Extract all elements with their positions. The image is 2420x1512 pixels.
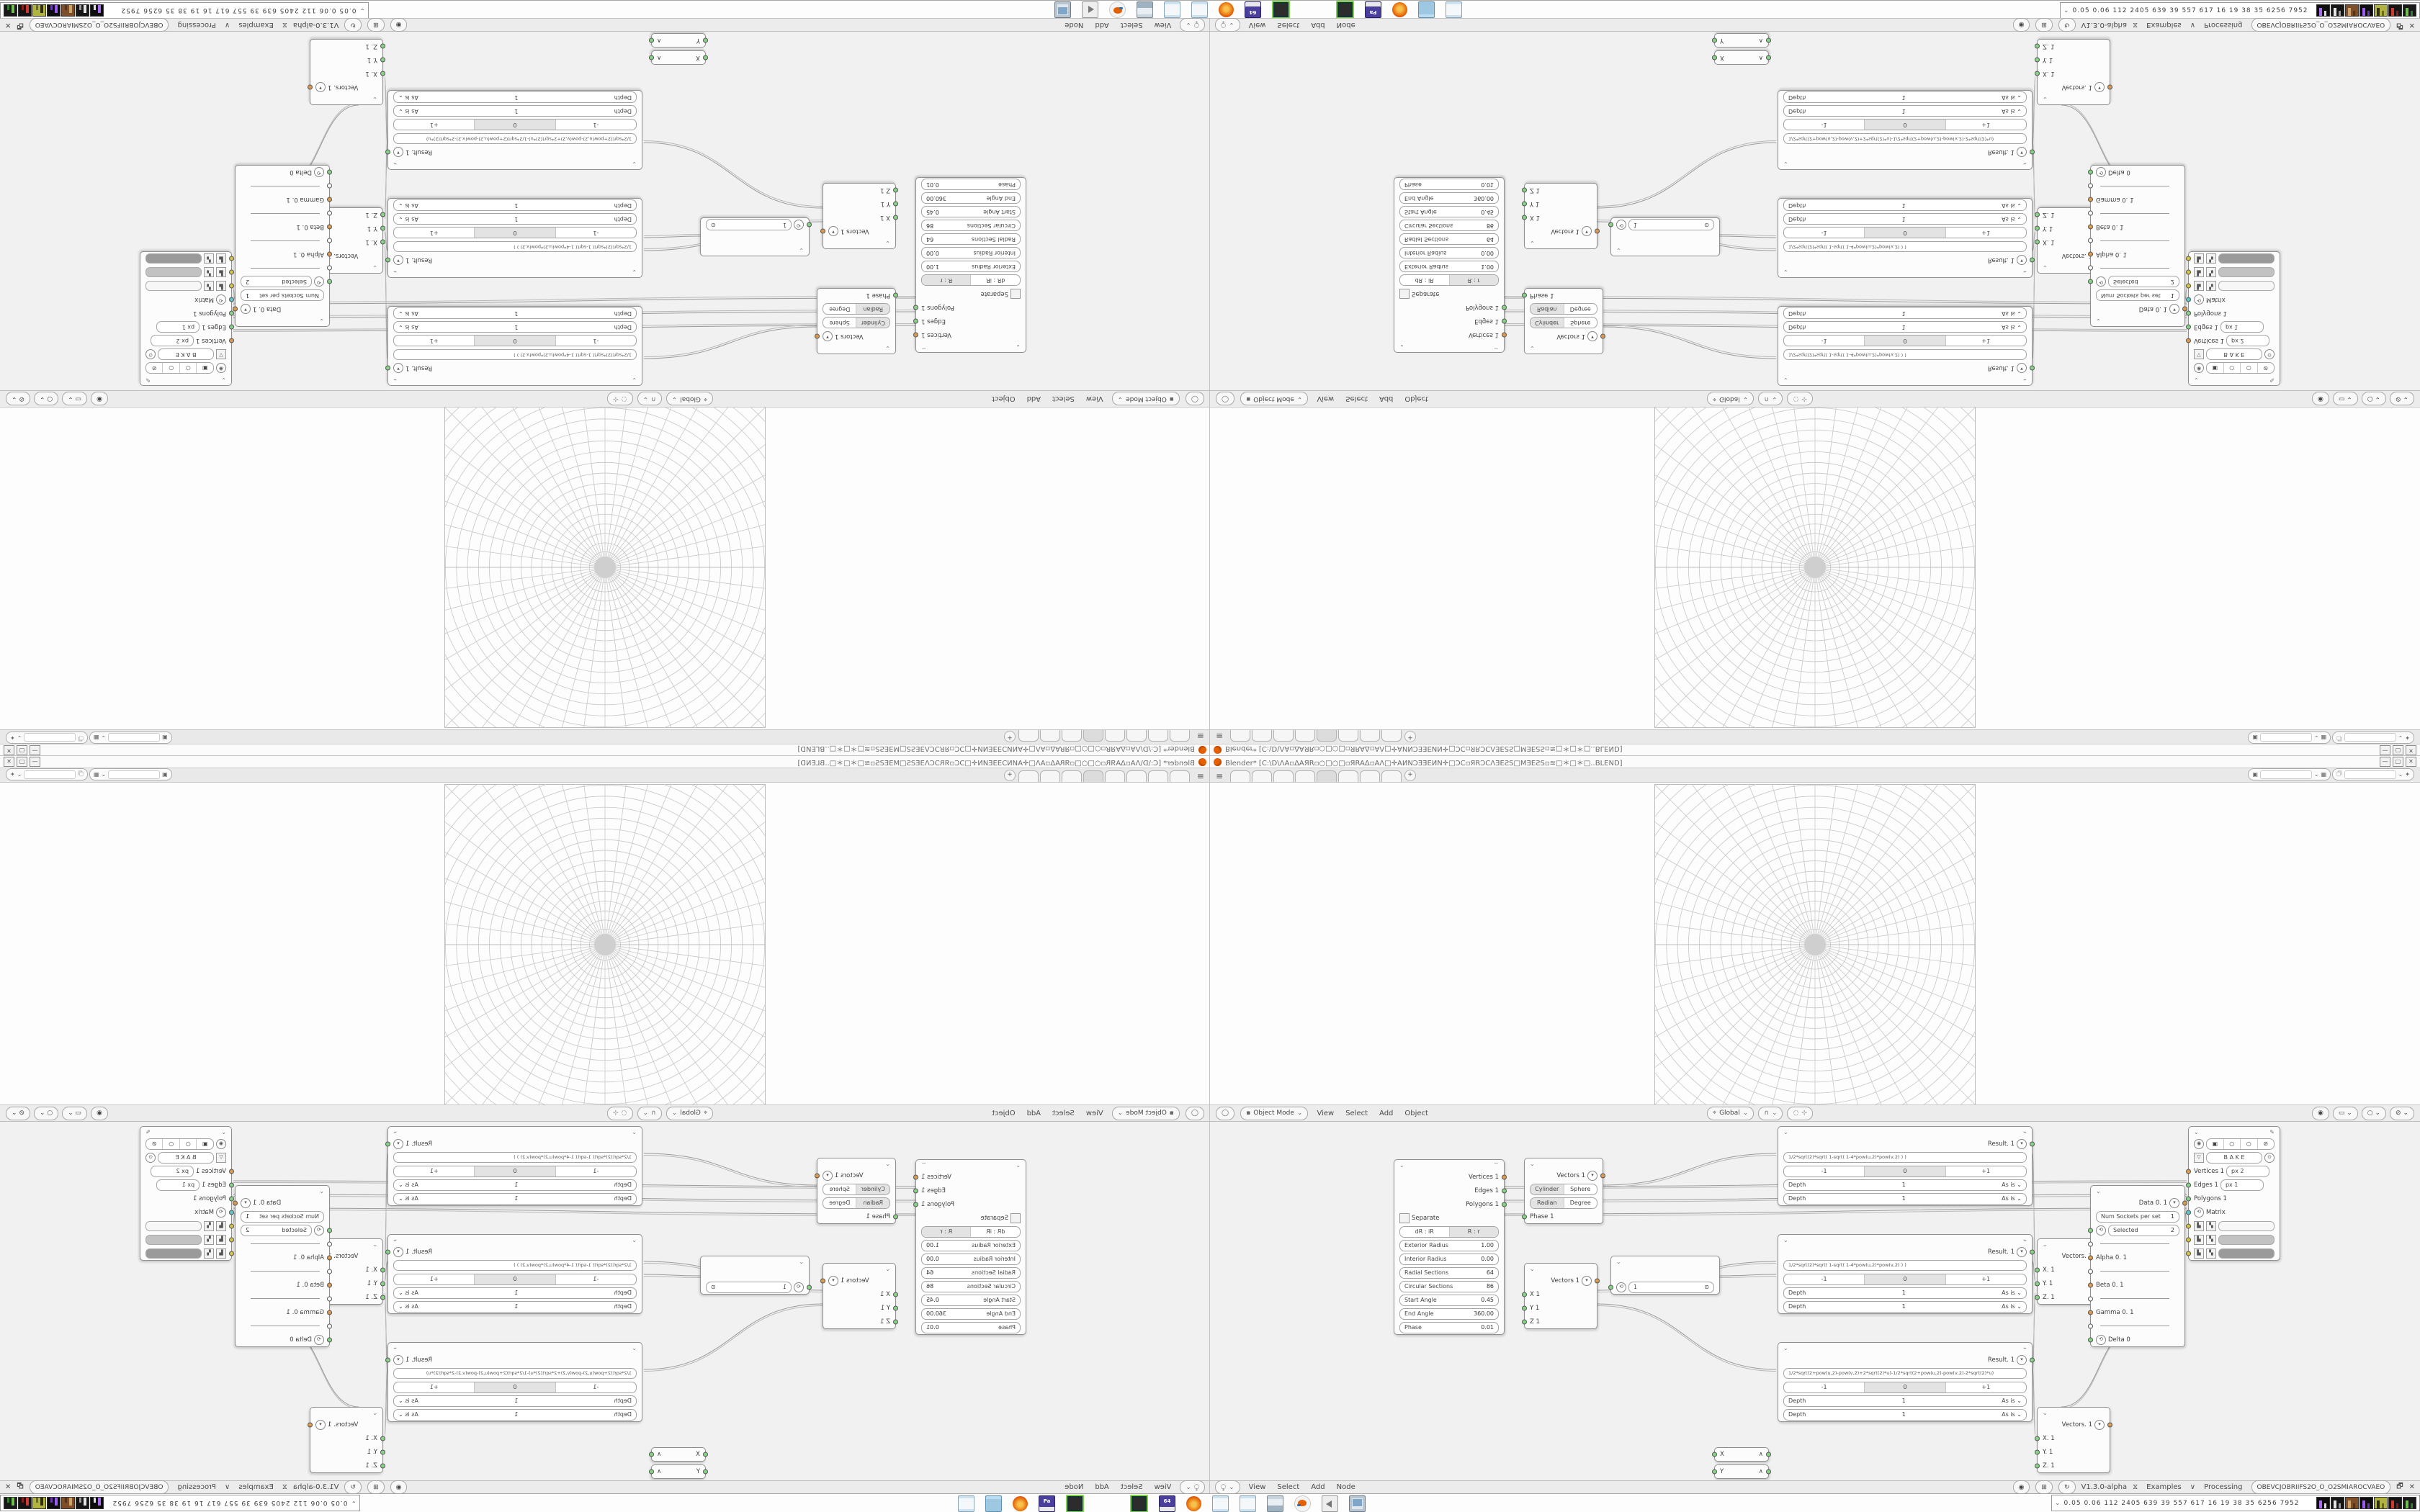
cycle-icon[interactable]: ⟲ — [314, 168, 324, 178]
color-swatch[interactable] — [2218, 268, 2275, 278]
viewport-menu-select[interactable]: Select — [1343, 395, 1371, 403]
menu-icon[interactable]: ≡ — [1197, 731, 1204, 741]
socket[interactable] — [2035, 1267, 2040, 1272]
selector-field[interactable] — [2260, 770, 2312, 779]
duplicate-icon[interactable]: 🗗 — [17, 19, 23, 31]
note-icon[interactable] — [1164, 2, 1180, 19]
display-toggles[interactable]: ▣○○⊘ — [145, 363, 214, 374]
header-toggle[interactable]: ◉ — [2013, 18, 2030, 32]
workspace-tab[interactable] — [1040, 770, 1060, 782]
socket[interactable] — [233, 307, 238, 312]
diskP-icon[interactable]: Pa — [1365, 2, 1381, 19]
socket[interactable] — [385, 1249, 390, 1254]
cycle-icon[interactable]: ⟲ — [2194, 1207, 2204, 1218]
socket[interactable] — [815, 334, 820, 339]
chevron-down-icon[interactable]: ⌄ — [17, 771, 22, 778]
socket[interactable] — [327, 197, 332, 202]
segmented-buttons[interactable]: dR : iRR : r — [1399, 1226, 1499, 1238]
formula-node[interactable]: ⌄⌁Result. 1▾1/2*sqrt(2)*sqrt( 1-sqrt( 1-… — [387, 1126, 642, 1206]
shading-toggle[interactable]: ○ ⌄ — [2362, 392, 2386, 406]
close-icon[interactable]: ✕ — [5, 21, 11, 29]
color-toggle[interactable]: ▚ — [204, 282, 214, 292]
workspace-tab[interactable] — [1338, 730, 1358, 742]
viewlayer-selector[interactable]: 🗇⌄✦ — [2332, 732, 2414, 744]
viewport-menu-view[interactable]: View — [1314, 395, 1337, 403]
color-swatch[interactable] — [2218, 254, 2275, 264]
collapse-chevron-icon[interactable]: ⌄ — [221, 1129, 226, 1135]
add-workspace-button[interactable]: + — [1004, 770, 1016, 781]
number-field[interactable]: Num Sockets per set1 — [2096, 1211, 2179, 1223]
shading-toggle[interactable]: ⊘ ⌄ — [2390, 392, 2414, 406]
menu-icon[interactable]: ≡ — [1216, 771, 1223, 781]
selector-field[interactable] — [2260, 734, 2312, 742]
segment-option[interactable]: -1 — [555, 228, 636, 238]
socket[interactable] — [2186, 1169, 2191, 1174]
socket[interactable] — [1522, 1214, 1527, 1219]
asis-dropdown[interactable]: As is ⌄ — [2002, 1195, 2022, 1202]
dropdown-circle-icon[interactable]: ▾ — [393, 364, 403, 374]
collapse-chevron-icon[interactable]: ∧ — [657, 37, 661, 44]
depth-field[interactable]: Depth1As is ⌄ — [1783, 92, 2027, 104]
vector-polar-in-node[interactable]: ⌄Vectors 1▾CylinderSphereRadianDegreePha… — [817, 288, 896, 354]
header-toggle[interactable]: ↻ — [2058, 1480, 2076, 1494]
collapse-chevron-icon[interactable]: ⌄ — [1530, 346, 1535, 352]
segment-option[interactable]: 0 — [1865, 1382, 1945, 1392]
dropdown-circle-icon[interactable]: ▾ — [828, 1276, 838, 1286]
segment-option[interactable]: +1 — [1946, 1382, 2026, 1392]
collapse-chevron-icon[interactable]: ⌄ — [799, 248, 804, 254]
toggle-icon[interactable]: ○ — [179, 364, 197, 374]
dropdown-circle-icon[interactable]: ▾ — [2017, 1247, 2027, 1257]
header-toggle[interactable]: ↻ — [2058, 18, 2076, 32]
segment-option[interactable]: Radian — [856, 1198, 890, 1208]
diskG-icon[interactable] — [1272, 1, 1290, 19]
dropdown-circle-icon[interactable]: ▾ — [241, 1198, 251, 1208]
segment-option[interactable]: +1 — [394, 1274, 474, 1284]
toggle-icon[interactable]: ▣ — [2207, 1139, 2224, 1149]
dropdown-circle-icon[interactable]: ▾ — [2169, 305, 2179, 315]
window-titlebar[interactable]: Blender* [C:\D\ΛΑ▫ΔΑЯR▫○□○□▫ЯRAΔ▫AΛ□✛AИN… — [0, 756, 1210, 768]
asis-dropdown[interactable]: As is ⌄ — [398, 216, 418, 222]
socket[interactable] — [2186, 1182, 2191, 1187]
workspace-tab[interactable] — [1018, 770, 1039, 782]
segment-option[interactable]: 0 — [474, 120, 555, 130]
easing-node[interactable]: ⌄⟲1⊙ — [700, 217, 810, 256]
asis-dropdown[interactable]: As is ⌄ — [398, 1411, 418, 1418]
workspace-tab[interactable] — [1360, 770, 1380, 782]
collapse-chevron-icon[interactable]: ⌄ — [632, 377, 637, 384]
workspace-tab[interactable] — [1317, 730, 1337, 742]
header-toggle[interactable]: ↻ — [344, 18, 362, 32]
scene-selector[interactable]: ▣⌄▦ — [2248, 732, 2331, 744]
dropdown-circle-icon[interactable]: ▾ — [2017, 364, 2027, 374]
collapse-chevron-icon[interactable]: ∧ — [1759, 1451, 1763, 1458]
number-field[interactable]: Phase0.01 — [921, 179, 1021, 191]
wifi-data-node[interactable]: ⌄Data 0. 1▾Num Sockets per set1⟲Selected… — [2090, 165, 2185, 327]
dropdown-circle-icon[interactable]: ▾ — [393, 1247, 403, 1257]
socket[interactable] — [2088, 1323, 2093, 1328]
workspace-tab[interactable] — [1062, 770, 1082, 782]
socket[interactable] — [2186, 325, 2191, 330]
socket[interactable] — [913, 333, 918, 338]
processing-menu[interactable]: Processing — [175, 1483, 219, 1491]
add-workspace-button[interactable]: + — [1404, 770, 1416, 781]
shading-toggle[interactable]: ◉ — [91, 392, 108, 406]
socket[interactable] — [327, 1296, 332, 1301]
socket[interactable] — [1522, 188, 1527, 193]
tree-arrow-icon[interactable]: ∨ — [2190, 1483, 2195, 1491]
duplicate-icon[interactable]: 🗗 — [2396, 19, 2403, 31]
dropdown-circle-icon[interactable]: ▾ — [315, 83, 326, 93]
formula-field[interactable]: 1/2*sqrt(2)*sqrt( 1-sqrt( 1-4*pow(u,2)*p… — [1783, 241, 2027, 252]
toggle-icon[interactable]: ▣ — [2207, 364, 2224, 374]
dropdown-circle-icon[interactable]: ▾ — [2017, 1139, 2027, 1149]
collapse-chevron-icon[interactable]: ∧ — [657, 54, 661, 61]
node-editor[interactable]: ⌄⌔Vertices 1Edges 1Polygons 1SeparatedR … — [0, 1122, 1210, 1480]
wifi-data-node[interactable]: ⌄Data 0. 1▾Num Sockets per set1⟲Selected… — [2090, 1185, 2185, 1347]
socket[interactable] — [893, 293, 898, 298]
selector-field[interactable] — [108, 770, 160, 779]
socket[interactable] — [2035, 1436, 2040, 1441]
viewlayer-selector[interactable]: 🗇⌄✦ — [6, 768, 88, 780]
depth-field[interactable]: Depth1As is ⌄ — [1783, 1193, 2027, 1205]
workspace-tab[interactable] — [1170, 770, 1190, 782]
spk-icon[interactable] — [1082, 2, 1098, 19]
node-editor[interactable]: ⌄⌔Vertices 1Edges 1Polygons 1SeparatedR … — [1210, 1122, 2420, 1480]
torus-node[interactable]: ⌄⌔Vertices 1Edges 1Polygons 1SeparatedR … — [1394, 177, 1505, 353]
px-field[interactable]: px 2 — [2226, 1166, 2269, 1177]
collapse-chevron-icon[interactable]: ⌄ — [1530, 240, 1535, 247]
socket[interactable] — [380, 71, 385, 76]
bake-icon[interactable]: ▽ — [2194, 350, 2204, 360]
eye-icon[interactable]: ◉ — [2194, 1139, 2204, 1149]
formula-node[interactable]: ⌄⌁Result. 1▾1/2*sqrt(2+pow(u,2)-pow(v,2)… — [387, 1342, 642, 1422]
collapse-chevron-icon[interactable]: ⌄ — [1399, 1162, 1404, 1169]
socket[interactable] — [1502, 1202, 1507, 1207]
header-toggle[interactable]: ◉ — [390, 1480, 408, 1494]
collapse-chevron-icon[interactable]: ⌄ — [372, 96, 377, 103]
viewport-menu-view[interactable]: View — [1314, 1110, 1337, 1117]
color-toggle[interactable]: ▙ — [216, 1248, 226, 1259]
asis-dropdown[interactable]: As is ⌄ — [398, 310, 418, 317]
color-swatch[interactable] — [145, 268, 202, 278]
wifi-data-node[interactable]: ⌄Data 0. 1▾Num Sockets per set1⟲Selected… — [235, 165, 330, 327]
selector-field[interactable] — [108, 734, 160, 742]
segment-option[interactable]: -1 — [555, 336, 636, 346]
vector-in-node[interactable]: ⌄Vectors. 1▾X. 1Y. 1Z. 1 — [310, 39, 383, 105]
color-toggle[interactable]: ▚ — [2206, 254, 2216, 264]
socket[interactable] — [1502, 1188, 1507, 1193]
collapse-chevron-icon[interactable]: ⌄ — [1399, 344, 1404, 351]
segment-option[interactable]: Degree — [1564, 1198, 1597, 1208]
color-toggle[interactable]: ▙ — [216, 268, 226, 278]
segment-option[interactable]: Degree — [823, 1198, 856, 1208]
viewport-menu-object[interactable]: Object — [1402, 1110, 1431, 1117]
color-toggle[interactable]: ▙ — [216, 254, 226, 264]
bake-extra-icon[interactable]: ⊙ — [145, 350, 156, 360]
snap-toggle[interactable]: ∩⌄ — [1758, 392, 1783, 406]
number-field[interactable]: Start Angle0.45 — [1399, 1295, 1499, 1306]
socket[interactable] — [913, 1174, 918, 1179]
viewport-3d[interactable] — [0, 783, 1210, 1104]
cycle-icon[interactable]: ⟲ — [2194, 295, 2204, 305]
socket[interactable] — [2088, 1269, 2093, 1274]
torus-node[interactable]: ⌄⌔Vertices 1Edges 1Polygons 1SeparatedR … — [1394, 1159, 1505, 1335]
vector-in-node[interactable]: ⌄Vectors. 1▾X. 1Y. 1Z. 1 — [2037, 1407, 2110, 1473]
collapse-chevron-icon[interactable]: ∧ — [657, 1451, 661, 1458]
workspace-tab[interactable] — [1273, 730, 1294, 742]
maximize-button[interactable]: ▢ — [17, 757, 27, 767]
formula-field[interactable]: 1/2*sqrt(2)*sqrt( 1-sqrt( 1-4*pow(u,2)*p… — [1783, 1260, 2027, 1271]
collapse-chevron-icon[interactable]: ⌄ — [1783, 161, 1788, 168]
segment-option[interactable]: Cylinder — [856, 1184, 890, 1194]
depth-field[interactable]: Depth1As is ⌄ — [393, 214, 637, 225]
socket[interactable] — [649, 55, 654, 60]
socket[interactable] — [327, 184, 332, 189]
viewer-draw-node[interactable]: ⌄✎◉▣○○⊘▽B A K E⊙Vertices 1px 2Edges 1px … — [140, 1126, 232, 1261]
collapse-chevron-icon[interactable]: ∧ — [1759, 1468, 1763, 1475]
socket[interactable] — [380, 1449, 385, 1454]
color-toggle[interactable]: ▚ — [204, 254, 214, 264]
segment-option[interactable]: -1 — [1784, 336, 1865, 346]
spk-icon[interactable] — [1322, 1495, 1338, 1512]
collapse-chevron-icon[interactable]: ⌄ — [885, 240, 890, 247]
socket[interactable] — [385, 1357, 390, 1362]
number-field[interactable]: End Angle360.00 — [1399, 193, 1499, 204]
collapse-chevron-icon[interactable]: ⌄ — [2043, 1241, 2048, 1248]
color-toggle[interactable]: ▙ — [2194, 268, 2204, 278]
viewport-menu-add[interactable]: Add — [1024, 1110, 1044, 1117]
chevron-down-icon[interactable]: ⌄ — [2314, 734, 2319, 741]
segment-option[interactable]: -1 — [1784, 1382, 1865, 1392]
socket[interactable] — [2088, 170, 2093, 175]
number-field[interactable]: Interior Radius0.00 — [921, 248, 1021, 259]
formula-node[interactable]: ⌄⌁Result. 1▾1/2*sqrt(2+pow(u,2)-pow(v,2)… — [387, 90, 642, 170]
menu-icon[interactable]: ≡ — [1216, 731, 1223, 741]
socket[interactable] — [380, 212, 385, 217]
collapse-chevron-icon[interactable]: ⌄ — [1783, 1129, 1788, 1135]
workspace-tab[interactable] — [1360, 730, 1380, 742]
number-field[interactable]: Selected2 — [2108, 1225, 2179, 1236]
socket[interactable] — [229, 270, 234, 275]
depth-field[interactable]: Depth1As is ⌄ — [393, 1301, 637, 1313]
socket[interactable] — [649, 1452, 654, 1457]
segment-option[interactable]: +1 — [1946, 336, 2026, 346]
diskG-icon[interactable] — [1336, 1, 1354, 19]
collapse-chevron-icon[interactable]: ⌄ — [885, 346, 890, 352]
segmented-buttons[interactable]: -10+1 — [393, 1382, 637, 1393]
socket[interactable] — [1712, 55, 1717, 60]
node-menu-add[interactable]: Add — [1092, 1483, 1111, 1491]
depth-field[interactable]: Depth1As is ⌄ — [393, 106, 637, 117]
viewport-3d[interactable] — [1210, 783, 2420, 1104]
orientation-selector[interactable]: ⌖Global⌄ — [1707, 392, 1754, 406]
depth-field[interactable]: Depth1As is ⌄ — [393, 200, 637, 212]
socket[interactable] — [893, 202, 898, 207]
socket[interactable] — [2030, 258, 2035, 263]
number-field[interactable]: Start Angle0.45 — [921, 1295, 1021, 1306]
collapse-chevron-icon[interactable]: ⌄ — [2043, 96, 2048, 103]
socket[interactable] — [893, 188, 898, 193]
socket[interactable] — [2186, 1237, 2191, 1242]
header-toggle[interactable]: ⊞ — [2035, 1480, 2053, 1494]
px-field[interactable]: px 2 — [2226, 336, 2269, 347]
dropdown-circle-icon[interactable]: ▾ — [2094, 83, 2105, 93]
socket[interactable] — [308, 1422, 313, 1427]
number-field[interactable]: End Angle360.00 — [1399, 1308, 1499, 1320]
cycle-icon[interactable]: ⟲ — [2096, 1335, 2106, 1345]
asis-dropdown[interactable]: As is ⌄ — [398, 324, 418, 330]
color-toggle[interactable]: ▚ — [2206, 282, 2216, 292]
workspace-tab[interactable] — [1105, 730, 1125, 742]
chevron-down-icon[interactable]: ⌄ — [17, 734, 22, 741]
asis-dropdown[interactable]: As is ⌄ — [398, 108, 418, 114]
segment-option[interactable]: dR : iR — [971, 276, 1021, 286]
tree-arrow-icon[interactable]: ∨ — [225, 21, 230, 29]
add-workspace-button[interactable]: + — [1404, 731, 1416, 742]
formula-node[interactable]: ⌄⌁Result. 1▾1/2*sqrt(2)*sqrt( 1-sqrt( 1-… — [1778, 306, 2033, 386]
color-swatch[interactable] — [145, 282, 202, 292]
node-menu-select[interactable]: Select — [1118, 1483, 1146, 1491]
segment-option[interactable]: dR : iR — [1400, 276, 1450, 286]
maximize-button[interactable]: ▢ — [17, 745, 27, 755]
color-toggle[interactable]: ▚ — [204, 1248, 214, 1259]
socket[interactable] — [229, 325, 234, 330]
px-field[interactable]: px 1 — [156, 1179, 200, 1191]
segmented-buttons[interactable]: -10+1 — [393, 228, 637, 239]
blender-icon[interactable] — [1294, 1495, 1311, 1512]
number-field[interactable]: Start Angle0.45 — [921, 207, 1021, 218]
collapse-chevron-icon[interactable]: ⌄ — [1016, 344, 1021, 351]
cycle-icon[interactable]: ⟲ — [794, 220, 804, 230]
viewport-menu-view[interactable]: View — [1083, 1110, 1106, 1117]
dropdown-circle-icon[interactable]: ▾ — [393, 1139, 403, 1149]
dropdown-circle-icon[interactable]: ▾ — [2169, 1198, 2179, 1208]
px-field[interactable]: px 1 — [156, 322, 200, 333]
socket[interactable] — [815, 1173, 820, 1178]
workspace-tab[interactable] — [1230, 730, 1250, 742]
segment-option[interactable]: +1 — [1946, 120, 2026, 130]
socket[interactable] — [649, 38, 654, 43]
toggle-icon[interactable]: ○ — [2224, 1139, 2241, 1149]
minimize-button[interactable]: — — [2380, 745, 2390, 755]
number-field[interactable]: Circular Sections86 — [1399, 1281, 1499, 1292]
node-menu-view[interactable]: View — [1152, 1483, 1175, 1491]
socket[interactable] — [2035, 212, 2040, 217]
socket[interactable] — [1600, 334, 1605, 339]
diskG-icon[interactable] — [1066, 1495, 1084, 1512]
socket[interactable] — [820, 229, 825, 234]
depth-field[interactable]: Depth1As is ⌄ — [393, 1193, 637, 1205]
socket[interactable] — [327, 1255, 332, 1260]
mon-icon[interactable] — [1054, 2, 1071, 19]
viewport-menu-object[interactable]: Object — [989, 1110, 1018, 1117]
depth-field[interactable]: Depth1As is ⌄ — [1783, 106, 2027, 117]
socket[interactable] — [2088, 1228, 2093, 1233]
color-toggle[interactable]: ▙ — [2194, 282, 2204, 292]
segmented-buttons[interactable]: RadianDegree — [1530, 304, 1597, 315]
bake-button[interactable]: B A K E — [158, 1152, 214, 1164]
socket[interactable] — [229, 311, 234, 316]
socket[interactable] — [820, 1278, 825, 1283]
checkbox[interactable] — [1399, 1213, 1410, 1223]
workspace-tab[interactable] — [1381, 770, 1402, 782]
shading-toggle[interactable]: ▭ ⌄ — [62, 392, 87, 406]
socket[interactable] — [308, 85, 313, 90]
formula-node[interactable]: ⌄⌁Result. 1▾1/2*sqrt(2)*sqrt( 1-sqrt( 1-… — [387, 198, 642, 278]
segment-option[interactable]: R : r — [922, 1227, 971, 1237]
maximize-button[interactable]: ▢ — [2393, 745, 2403, 755]
socket[interactable] — [703, 1470, 708, 1475]
toggle-icon[interactable]: ⊘ — [146, 1139, 163, 1149]
examples-menu[interactable]: Examples — [2143, 21, 2184, 29]
dropdown-circle-icon[interactable]: ▾ — [241, 305, 251, 315]
segment-option[interactable]: Cylinder — [1531, 318, 1564, 328]
vector-in-node[interactable]: ⌄Vectors 1▾X 1Y 1Z 1 — [823, 1263, 896, 1329]
number-field[interactable]: Exterior Radius1.00 — [921, 261, 1021, 273]
socket[interactable] — [2182, 1200, 2187, 1205]
asis-dropdown[interactable]: As is ⌄ — [398, 1303, 418, 1310]
bake-extra-icon[interactable]: ⊙ — [2264, 1153, 2275, 1163]
number-field[interactable]: Interior Radius0.00 — [921, 1254, 1021, 1265]
socket[interactable] — [913, 1202, 918, 1207]
asis-dropdown[interactable]: As is ⌄ — [398, 1182, 418, 1188]
editor-type-button[interactable]: ⧬⌄ — [1215, 1480, 1240, 1494]
viewport-menu-add[interactable]: Add — [1376, 1110, 1396, 1117]
color-swatch[interactable] — [2218, 1221, 2275, 1231]
segmented-buttons[interactable]: -10+1 — [393, 1166, 637, 1177]
dropdown-circle-icon[interactable]: ▾ — [315, 1420, 326, 1430]
workspace-tab[interactable] — [1252, 730, 1272, 742]
viewer-draw-node[interactable]: ⌄✎◉▣○○⊘▽B A K E⊙Vertices 1px 2Edges 1px … — [2188, 251, 2280, 386]
asis-dropdown[interactable]: As is ⌄ — [2002, 94, 2022, 101]
shading-toggle[interactable]: ◉ — [2312, 1107, 2329, 1120]
socket[interactable] — [327, 1269, 332, 1274]
socket[interactable] — [327, 1228, 332, 1233]
number-field[interactable]: Interior Radius0.00 — [1399, 248, 1499, 259]
toggle-icon[interactable]: ⊘ — [2258, 1139, 2275, 1149]
depth-field[interactable]: Depth1As is ⌄ — [393, 1395, 637, 1407]
scene-selector[interactable]: ▣⌄▦ — [89, 732, 172, 744]
segment-option[interactable]: -1 — [1784, 228, 1865, 238]
shading-toggle[interactable]: ○ ⌄ — [34, 392, 58, 406]
socket[interactable] — [2088, 266, 2093, 271]
socket[interactable] — [229, 284, 234, 289]
segment-option[interactable]: 0 — [1865, 228, 1945, 238]
asis-dropdown[interactable]: As is ⌄ — [398, 1398, 418, 1404]
number-field[interactable]: 1⊙ — [706, 220, 792, 231]
depth-field[interactable]: Depth1As is ⌄ — [393, 1287, 637, 1299]
formula-field[interactable]: 1/2*sqrt(2+pow(u,2)-pow(v,2)+2*sqrt(2)*u… — [1783, 1368, 2027, 1379]
socket[interactable] — [2030, 1249, 2035, 1254]
socket[interactable] — [229, 1182, 234, 1187]
segment-option[interactable]: Cylinder — [1531, 1184, 1564, 1194]
socket[interactable] — [2030, 366, 2035, 371]
segment-option[interactable]: 0 — [474, 1382, 555, 1392]
orientation-selector[interactable]: ⌖Global⌄ — [666, 392, 713, 406]
socket[interactable] — [327, 225, 332, 230]
proportional-editing-toggle[interactable]: ◌⊹ — [1787, 1107, 1812, 1120]
collapse-chevron-icon[interactable]: ⌄ — [632, 1345, 637, 1351]
segmented-buttons[interactable]: dR : iRR : r — [1399, 275, 1499, 287]
number-field[interactable]: Circular Sections86 — [921, 220, 1021, 232]
number-field[interactable]: Radial Sections64 — [1399, 1267, 1499, 1279]
depth-field[interactable]: Depth1As is ⌄ — [1783, 200, 2027, 212]
checkbox[interactable] — [1399, 289, 1410, 300]
socket[interactable] — [893, 1305, 898, 1310]
workspace-tab[interactable] — [1295, 770, 1315, 782]
segment-option[interactable]: 0 — [474, 228, 555, 238]
